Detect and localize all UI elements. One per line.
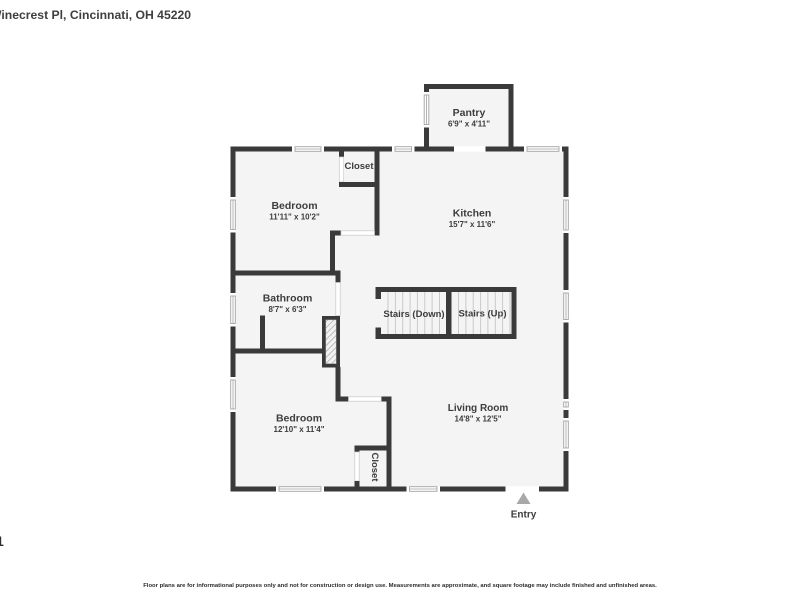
svg-text:Bedroom: Bedroom <box>276 413 322 425</box>
svg-text:12'10" x 11'4": 12'10" x 11'4" <box>274 425 325 434</box>
svg-text:6'9" x 4'11": 6'9" x 4'11" <box>448 120 490 129</box>
svg-text:15'7" x 11'6": 15'7" x 11'6" <box>449 220 496 229</box>
svg-text:Closet: Closet <box>369 452 380 482</box>
svg-text:8'7" x 6'3": 8'7" x 6'3" <box>268 305 306 314</box>
svg-text:Kitchen: Kitchen <box>453 208 492 220</box>
svg-text:Living Room: Living Room <box>448 403 509 414</box>
svg-text:Bedroom: Bedroom <box>271 200 317 212</box>
svg-text:14'8" x 12'5": 14'8" x 12'5" <box>455 415 502 424</box>
svg-text:Closet: Closet <box>344 161 374 172</box>
svg-text:Stairs (Up): Stairs (Up) <box>458 309 506 320</box>
svg-text:Stairs (Down): Stairs (Down) <box>383 309 444 320</box>
svg-text:Entry: Entry <box>511 510 537 521</box>
svg-text:Bathroom: Bathroom <box>263 293 313 305</box>
svg-text:11'11" x 10'2": 11'11" x 10'2" <box>269 213 320 222</box>
svg-text:Pantry: Pantry <box>453 107 486 119</box>
